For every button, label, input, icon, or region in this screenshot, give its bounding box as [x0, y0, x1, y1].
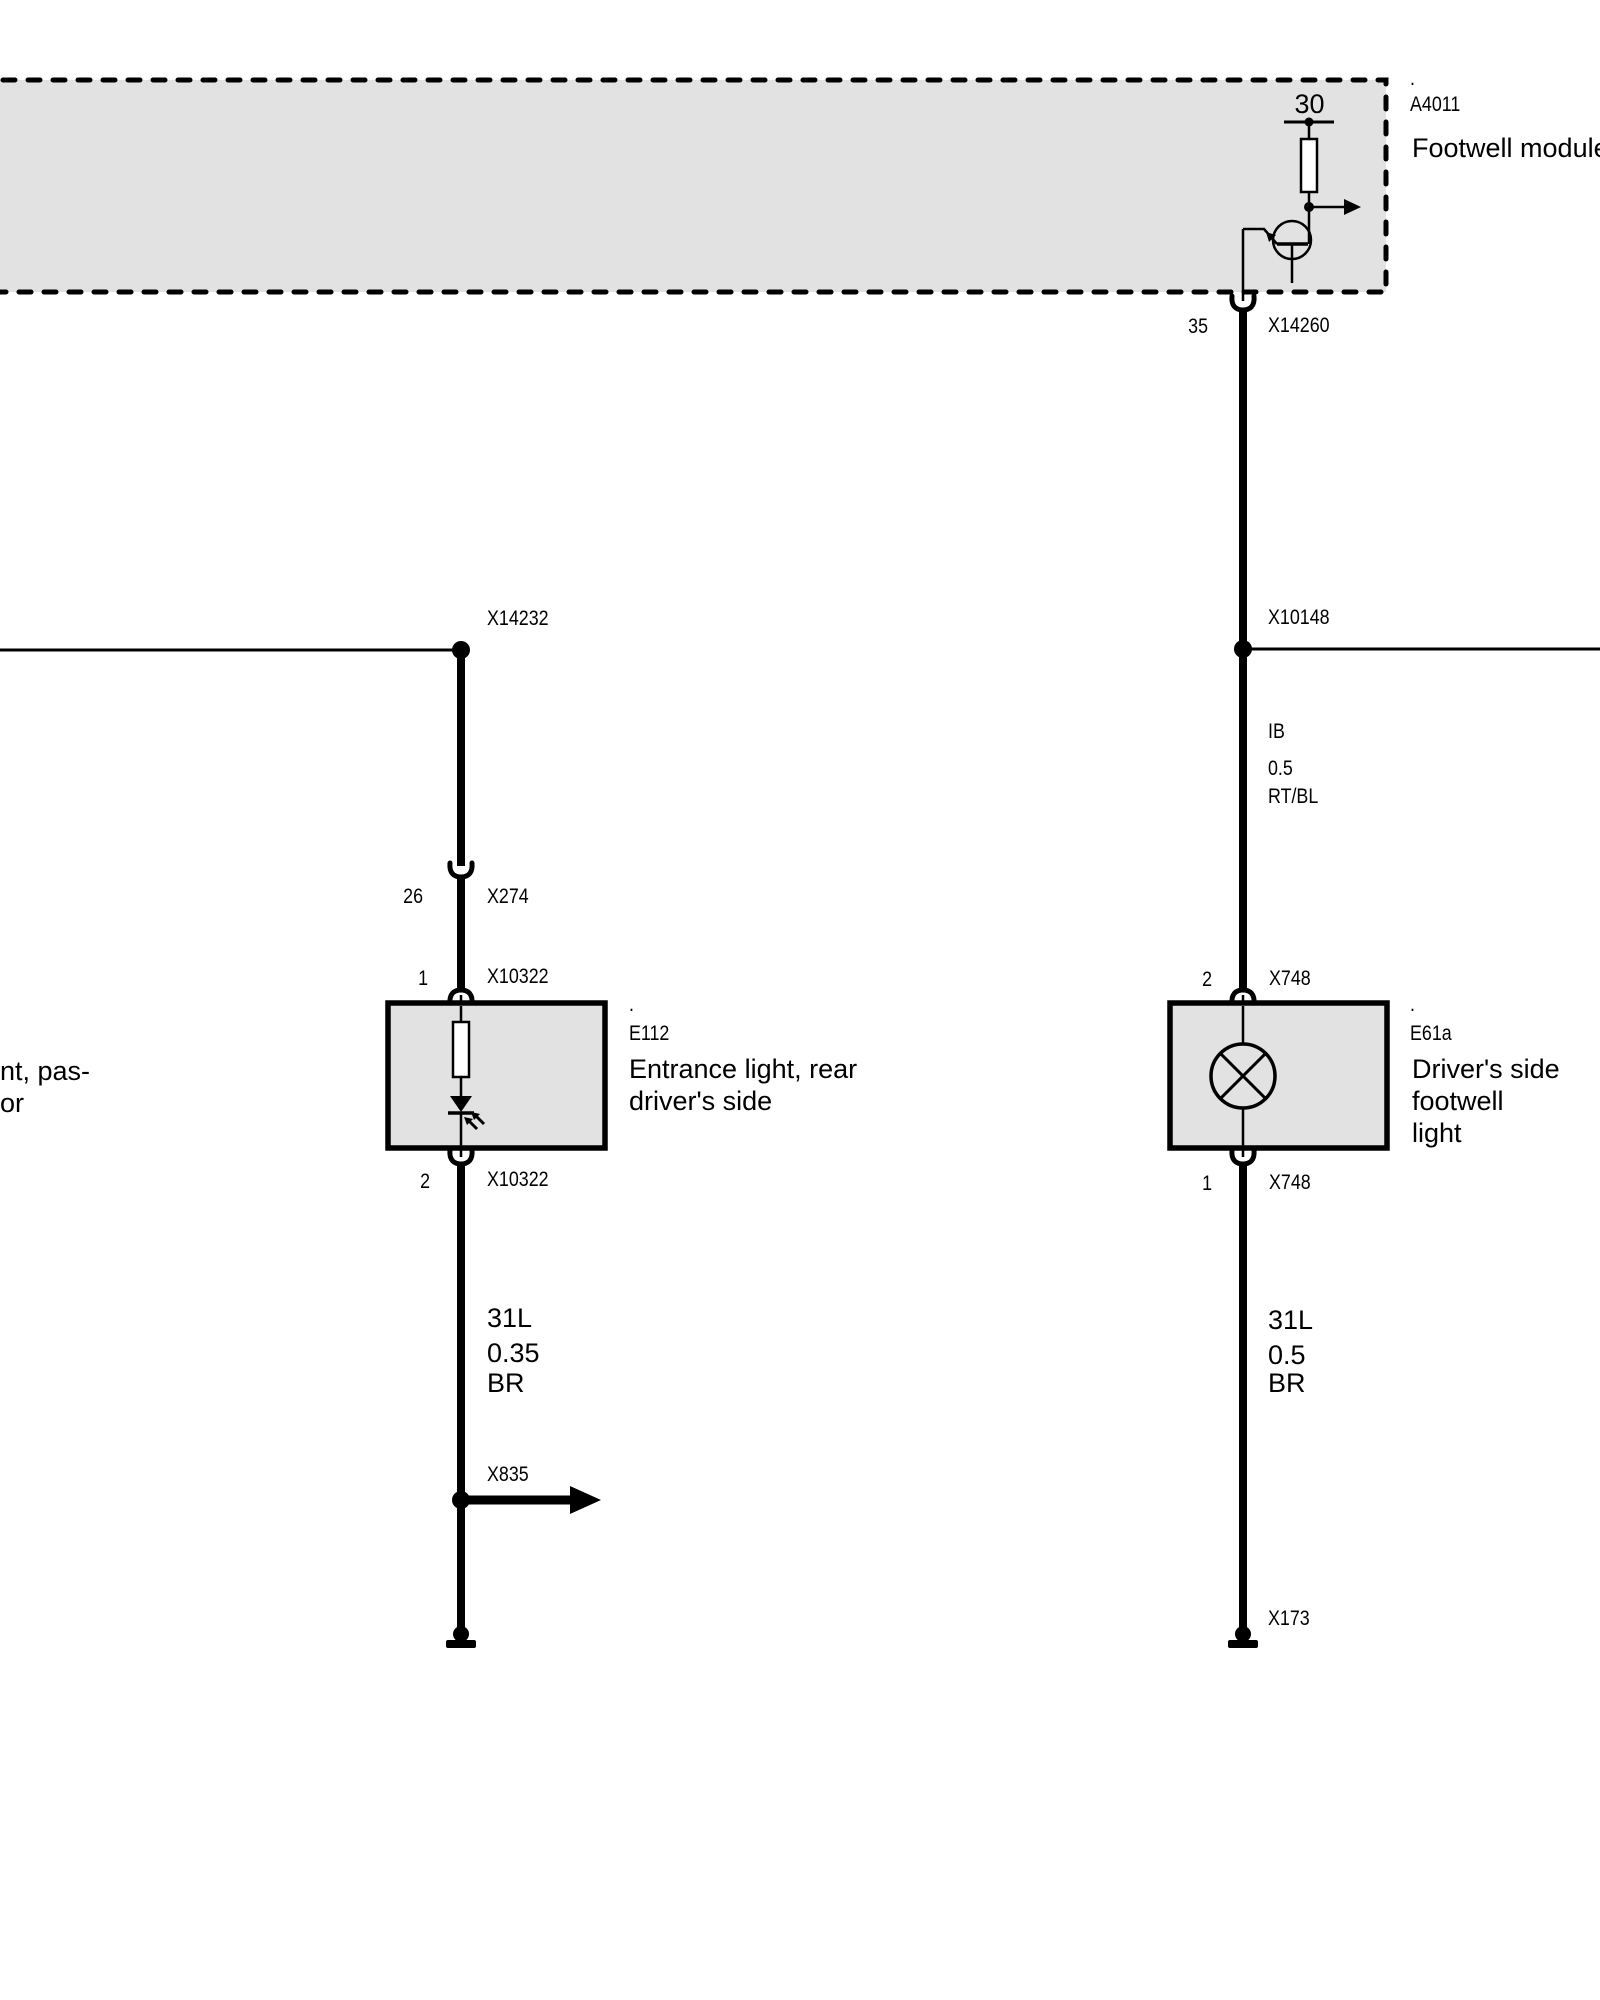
ground-symbol-left-icon: [446, 1626, 476, 1648]
connector-x173-label: X173: [1268, 1608, 1310, 1629]
x274-pin-number: 26: [389, 886, 423, 907]
ground-symbol-right-icon: [1228, 1626, 1258, 1648]
e112-code-dot: .: [629, 994, 634, 1015]
wire-left-cross-section: 0.35: [487, 1340, 540, 1367]
connector-x14232-label: X14232: [487, 608, 549, 629]
wire-left-circuit-code: 31L: [487, 1305, 532, 1332]
wire-ib-color-code: RT/BL: [1268, 786, 1318, 807]
edge-clipped-component-label: nt, pas- or: [0, 1055, 90, 1119]
e112-code: E112: [629, 1023, 669, 1044]
connector-x10322-top-label: X10322: [487, 966, 549, 987]
module-name: Footwell module: [1412, 135, 1600, 162]
connector-x835-label: X835: [487, 1464, 529, 1485]
module-code: A4011: [1410, 94, 1460, 115]
e61a-component-box: [1170, 1003, 1387, 1157]
diagram-linework: [0, 0, 1600, 2000]
e61a-name: Driver's side footwell light: [1412, 1053, 1600, 1149]
connector-x748-top-label: X748: [1269, 968, 1311, 989]
branch-arrow-head-icon: [570, 1486, 601, 1514]
branch-x835: [452, 1486, 601, 1514]
module-pin-number: 35: [1174, 316, 1208, 337]
wiring-diagram-page: . A4011 Footwell module 30 35 X14260 X14…: [0, 0, 1600, 2000]
wire-right-cross-section: 0.5: [1268, 1342, 1306, 1369]
e61a-code-dot: .: [1410, 994, 1415, 1015]
e61a-bottom-pin-number: 1: [1178, 1173, 1212, 1194]
connector-x10148-label: X10148: [1268, 607, 1330, 628]
wire-right-color-code: BR: [1268, 1370, 1306, 1397]
footwell-module-box: [0, 80, 1386, 292]
wire-left-color-code: BR: [487, 1370, 525, 1397]
connector-x10322-bottom-label: X10322: [487, 1169, 549, 1190]
e61a-code: E61a: [1410, 1023, 1452, 1044]
module-dashed-border: [0, 80, 1386, 292]
terminal-30-label: 30: [1282, 91, 1337, 118]
wire-ib-circuit-code: IB: [1268, 721, 1285, 742]
e61a-top-pin-number: 2: [1178, 969, 1212, 990]
connector-x748-bottom-label: X748: [1269, 1172, 1311, 1193]
e112-top-pin-number: 1: [394, 968, 428, 989]
connector-x274-label: X274: [487, 886, 529, 907]
e112-resistor-icon: [453, 1022, 469, 1077]
e112-component-box: [388, 1003, 605, 1157]
e112-name: Entrance light, rear driver's side: [629, 1053, 857, 1117]
junction-x10148: [1234, 640, 1600, 658]
wire-right-circuit-code: 31L: [1268, 1307, 1313, 1334]
connector-x14260-label: X14260: [1268, 315, 1330, 336]
wire-ib-cross-section: 0.5: [1268, 758, 1293, 779]
e112-bottom-pin-number: 2: [396, 1171, 430, 1192]
module-code-dot: .: [1410, 68, 1415, 89]
